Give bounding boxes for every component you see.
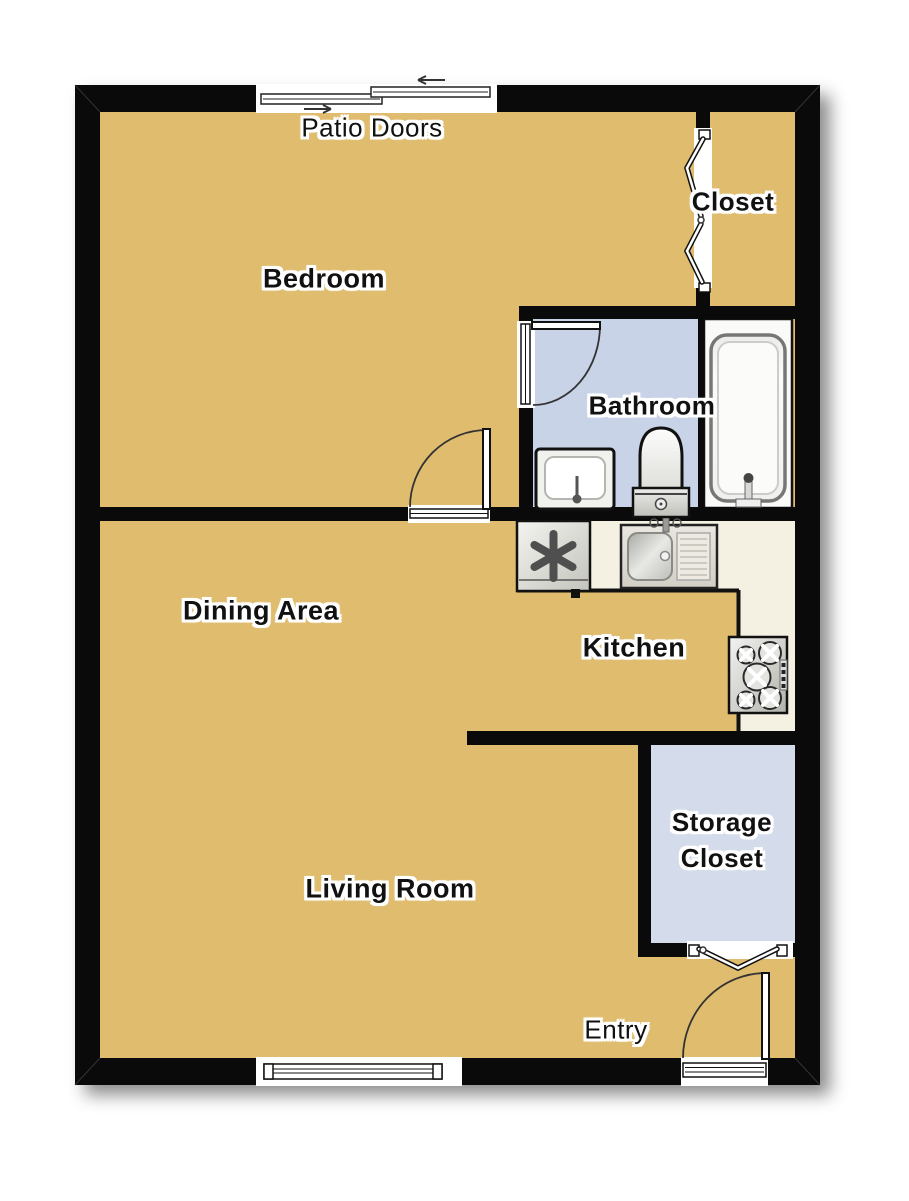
stove — [729, 637, 787, 713]
bathroom-sink — [536, 449, 614, 509]
kitchen-label: Kitchen — [583, 633, 686, 664]
storage-closet-label: Storage Closet — [672, 804, 772, 876]
toilet-bowl — [640, 428, 682, 493]
entry-door-leaf — [762, 973, 769, 1059]
wall-bathroom-top — [519, 306, 795, 319]
refrigerator — [517, 521, 590, 598]
wall-kitchen-bottom — [467, 731, 795, 745]
wall-storage-left — [638, 745, 651, 957]
entry-label: Entry — [584, 1015, 647, 1046]
dining-area-label: Dining Area — [183, 596, 339, 627]
patio-doors-label: Patio Doors — [301, 113, 442, 144]
bedroom-label: Bedroom — [263, 264, 385, 295]
kitchen-sink — [621, 516, 717, 588]
floor-plan: Patio Doors Bedroom Closet Bathroom Dini… — [0, 0, 909, 1201]
window — [264, 1064, 442, 1079]
wall-exterior-left — [75, 85, 100, 1085]
toilet — [633, 428, 689, 517]
floor-plan-drawing — [0, 0, 909, 1201]
slide-arrow-left — [418, 76, 445, 84]
bathroom-door-leaf — [532, 322, 600, 329]
bedroom-door-leaf — [483, 429, 490, 509]
bathroom-label: Bathroom — [589, 391, 716, 422]
closet-label: Closet — [692, 187, 774, 218]
sink-drain — [661, 552, 670, 561]
wall-exterior-right — [795, 85, 820, 1085]
storage-closet-label-line2: Closet — [672, 840, 772, 876]
storage-closet-label-line1: Storage — [672, 804, 772, 840]
living-room-label: Living Room — [306, 874, 475, 905]
bathtub — [711, 335, 785, 507]
refrigerator-handle — [571, 589, 580, 598]
